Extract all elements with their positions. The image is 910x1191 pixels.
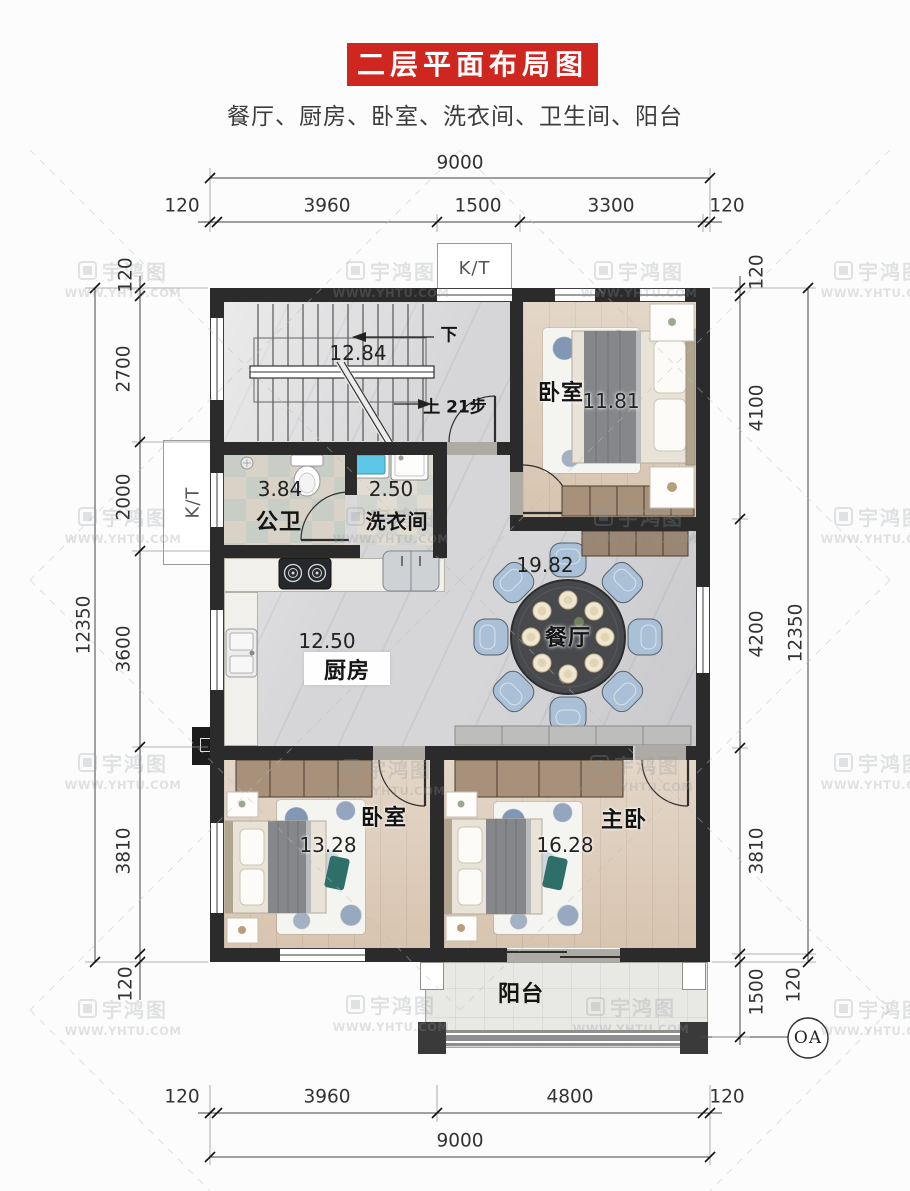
axis-bubble-label: OA xyxy=(794,1028,822,1048)
dim-right-seg: 120 xyxy=(747,254,768,289)
floorplan-page: 二层平面布局图 餐厅、厨房、卧室、洗衣间、卫生间、阳台 K/T K/T xyxy=(0,0,910,1191)
dim-right-balcony: 1500 xyxy=(747,968,768,1015)
bedroom-top-area: 11.81 xyxy=(582,389,639,413)
dim-right-seg: 120 xyxy=(784,967,805,1002)
dim-left-overall: 12350 xyxy=(74,596,95,655)
dim-top-seg: 120 xyxy=(709,196,744,217)
dim-right-seg: 3810 xyxy=(747,827,768,874)
page-subtitle: 餐厅、厨房、卧室、洗衣间、卫生间、阳台 xyxy=(0,97,910,131)
dim-left-seg: 120 xyxy=(116,966,137,1001)
dim-bottom-overall: 9000 xyxy=(436,1131,483,1152)
dim-left-seg: 3810 xyxy=(114,827,135,874)
dim-bottom-seg: 4800 xyxy=(546,1087,593,1108)
bathroom-area: 3.84 xyxy=(258,477,303,501)
bedroom-left-area: 13.28 xyxy=(299,833,356,857)
dim-right-seg: 4200 xyxy=(747,610,768,657)
dim-top-seg: 3960 xyxy=(303,196,350,217)
balcony-label: 阳台 xyxy=(498,976,544,1008)
dim-left-seg: 3600 xyxy=(114,625,135,672)
master-bedroom-area: 16.28 xyxy=(536,833,593,857)
master-bedroom-label: 主卧 xyxy=(601,802,647,834)
dim-top-overall: 9000 xyxy=(436,153,483,174)
dim-left-seg: 2700 xyxy=(114,345,135,392)
kitchen-label: 厨房 xyxy=(324,653,370,685)
bedroom-top-label: 卧室 xyxy=(538,375,584,407)
laundry-label: 洗衣间 xyxy=(366,506,429,535)
laundry-area: 2.50 xyxy=(369,477,414,501)
page-title: 二层平面布局图 xyxy=(347,43,598,86)
dim-left-seg: 2000 xyxy=(114,473,135,520)
dim-top-seg: 3300 xyxy=(587,196,634,217)
bedroom-left-label: 卧室 xyxy=(361,800,407,832)
kitchen-label-box: 厨房 xyxy=(304,652,390,685)
bathroom-label: 公卫 xyxy=(256,504,302,536)
dim-right-seg: 4100 xyxy=(747,384,768,431)
dining-label: 餐厅 xyxy=(545,620,591,652)
stairwell-area: 12.84 xyxy=(329,341,386,365)
dim-top-seg: 1500 xyxy=(454,196,501,217)
decorative-dashes xyxy=(0,0,910,1191)
dim-right-overall: 12350 xyxy=(786,604,807,663)
stairs-down-label: 下 xyxy=(441,321,458,346)
dim-bottom-seg: 3960 xyxy=(303,1087,350,1108)
dim-top-seg: 120 xyxy=(164,196,199,217)
kitchen-area: 12.50 xyxy=(298,629,355,653)
stairs-up-label: 上 21步 xyxy=(423,393,487,418)
dim-bottom-seg: 120 xyxy=(164,1087,199,1108)
dim-left-seg: 120 xyxy=(116,257,137,292)
dining-area: 19.82 xyxy=(516,553,573,577)
dim-bottom-seg: 120 xyxy=(709,1087,744,1108)
